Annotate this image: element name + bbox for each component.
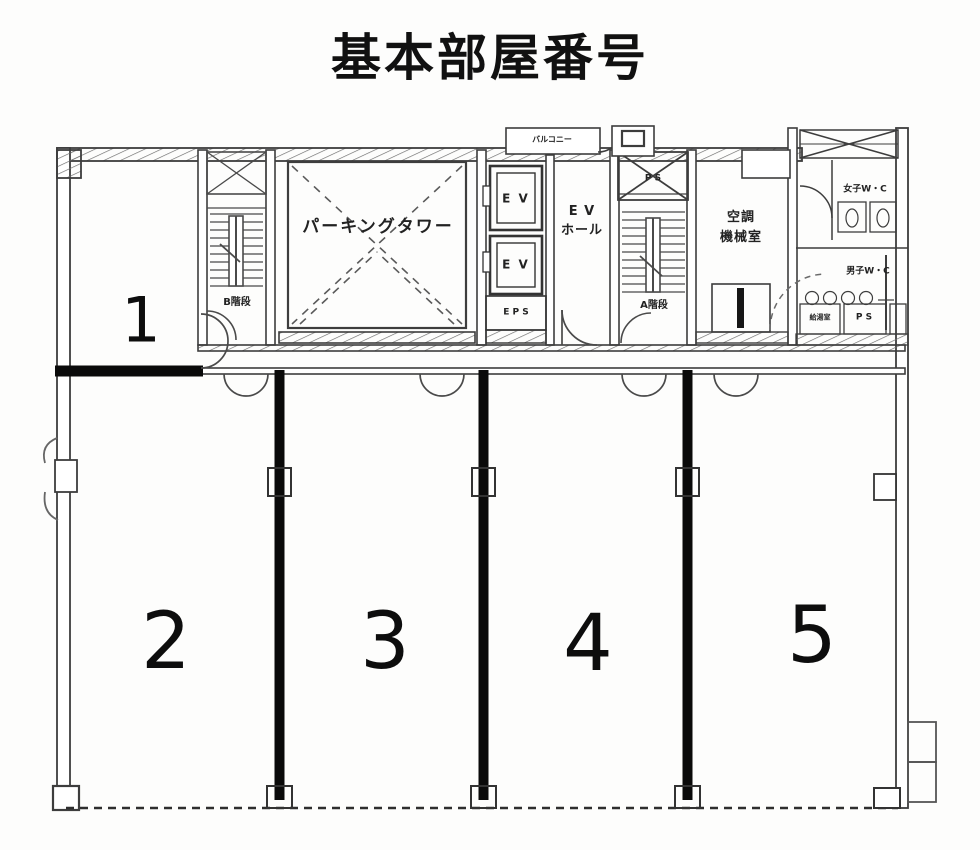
ev-hall-door-arc — [562, 310, 597, 345]
ps-shaft-label: P S — [645, 174, 661, 183]
corridor-walls — [198, 345, 905, 374]
womens-wc-label: 女子W・C — [843, 185, 887, 194]
hvac-label-line1: 空調 — [727, 211, 755, 225]
page-title: 基本部屋番号 — [331, 18, 649, 90]
eps-label: E P S — [503, 308, 529, 317]
hvac-room — [696, 150, 826, 343]
room-number-2: 2 — [141, 597, 191, 687]
floor-plan-page: 基本部屋番号 1 2 3 4 5 パーキングタワー B階段 A階段 E V E … — [0, 0, 980, 850]
room-number-3: 3 — [360, 597, 410, 687]
pantry-label: 給湯室 — [810, 314, 831, 321]
hvac-label-line2: 機械室 — [720, 231, 762, 245]
elevator-2-label: E V — [502, 259, 530, 272]
bottom-window-wall — [66, 722, 936, 808]
mens-wc-label: 男子W・C — [846, 267, 890, 276]
corridor-door-arcs — [224, 374, 758, 396]
parking-tower-label: パーキングタワー — [302, 219, 454, 237]
room-number-1: 1 — [121, 284, 160, 357]
parking-tower-outline — [279, 162, 475, 343]
ps-small-label: P S — [856, 313, 872, 322]
stairs-a-label: A階段 — [640, 301, 668, 312]
ev-hall-label-line1: E V — [569, 205, 595, 219]
balcony-label: バルコニー — [532, 136, 572, 144]
elevator-1-label: E V — [502, 193, 530, 206]
room-dividers — [267, 370, 896, 808]
stairs-a — [621, 212, 685, 343]
room-number-4: 4 — [563, 599, 613, 689]
stairs-b-label: B階段 — [223, 298, 251, 309]
balcony-outline — [506, 126, 654, 156]
floor-plan-drawing — [0, 0, 980, 850]
stairs-b — [207, 152, 266, 340]
room-number-5: 5 — [787, 591, 837, 681]
ev-hall-label-line2: ホール — [561, 224, 603, 238]
